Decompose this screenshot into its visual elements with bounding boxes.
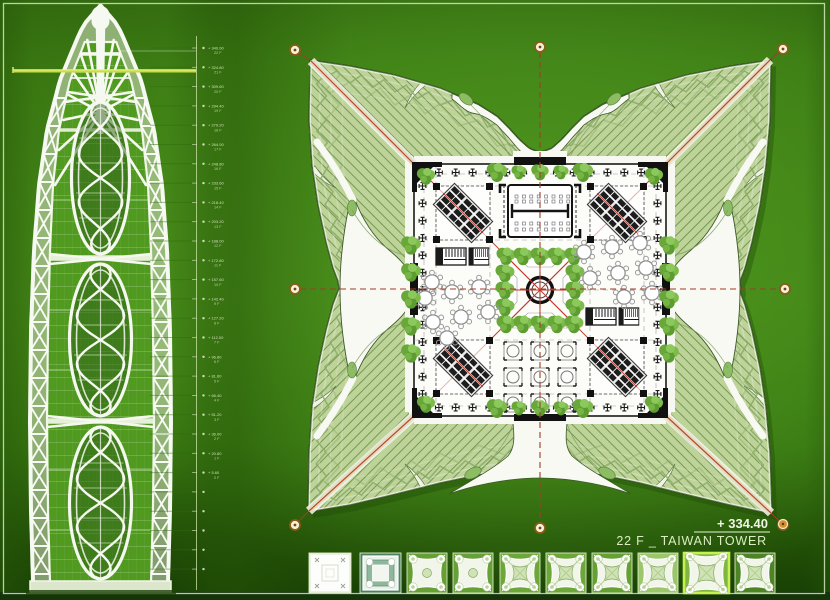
svg-text:+ 188.00: + 188.00 <box>208 239 224 244</box>
svg-text:17 F: 17 F <box>214 148 222 152</box>
svg-text:3 F: 3 F <box>214 418 220 422</box>
svg-text:7 F: 7 F <box>214 341 220 345</box>
svg-text:20 F: 20 F <box>214 90 222 94</box>
svg-text:+ 20.80: + 20.80 <box>208 451 222 456</box>
svg-text:+ 36.00: + 36.00 <box>208 432 222 437</box>
svg-text:4 F: 4 F <box>214 399 220 403</box>
svg-text:21 F: 21 F <box>214 71 222 75</box>
svg-text:+ 324.80: + 324.80 <box>208 65 224 70</box>
svg-text:+ 340.00: + 340.00 <box>208 46 224 51</box>
svg-text:10 F: 10 F <box>214 283 222 287</box>
svg-text:2 F: 2 F <box>214 437 220 441</box>
svg-text:+ 142.40: + 142.40 <box>208 296 224 301</box>
svg-text:22 F _ TAIWAN TOWER: 22 F _ TAIWAN TOWER <box>616 534 767 548</box>
svg-text:+ 51.20: + 51.20 <box>208 412 222 417</box>
svg-text:8 F: 8 F <box>214 321 220 325</box>
svg-text:0 F: 0 F <box>214 476 220 480</box>
svg-text:+ 334.40: + 334.40 <box>717 516 768 531</box>
svg-text:12 F: 12 F <box>214 244 222 248</box>
svg-text:22 F: 22 F <box>214 51 222 55</box>
svg-text:+ 248.80: + 248.80 <box>208 161 224 166</box>
svg-text:+ 218.40: + 218.40 <box>208 200 224 205</box>
svg-text:+ 157.60: + 157.60 <box>208 277 224 282</box>
svg-text:1 F: 1 F <box>214 457 220 461</box>
svg-text:+ 233.60: + 233.60 <box>208 181 224 186</box>
svg-text:+ 203.20: + 203.20 <box>208 219 224 224</box>
svg-text:+ 5.60: + 5.60 <box>208 470 220 475</box>
svg-text:+ 264.00: + 264.00 <box>208 142 224 147</box>
svg-text:+ 279.20: + 279.20 <box>208 123 224 128</box>
svg-text:+ 66.40: + 66.40 <box>208 393 222 398</box>
svg-text:+ 96.80: + 96.80 <box>208 354 222 359</box>
svg-text:+ 172.80: + 172.80 <box>208 258 224 263</box>
svg-text:14 F: 14 F <box>214 206 222 210</box>
svg-text:+ 127.20: + 127.20 <box>208 316 224 321</box>
svg-text:18 F: 18 F <box>214 128 222 132</box>
svg-text:+ 294.40: + 294.40 <box>208 103 224 108</box>
svg-text:5 F: 5 F <box>214 379 220 383</box>
svg-text:+ 309.60: + 309.60 <box>208 84 224 89</box>
svg-text:9 F: 9 F <box>214 302 220 306</box>
svg-text:+ 81.60: + 81.60 <box>208 374 222 379</box>
svg-text:6 F: 6 F <box>214 360 220 364</box>
svg-text:11 F: 11 F <box>214 264 222 268</box>
svg-text:19 F: 19 F <box>214 109 222 113</box>
svg-text:16 F: 16 F <box>214 167 222 171</box>
svg-text:15 F: 15 F <box>214 186 222 190</box>
svg-text:+ 112.00: + 112.00 <box>208 335 224 340</box>
svg-text:13 F: 13 F <box>214 225 222 229</box>
